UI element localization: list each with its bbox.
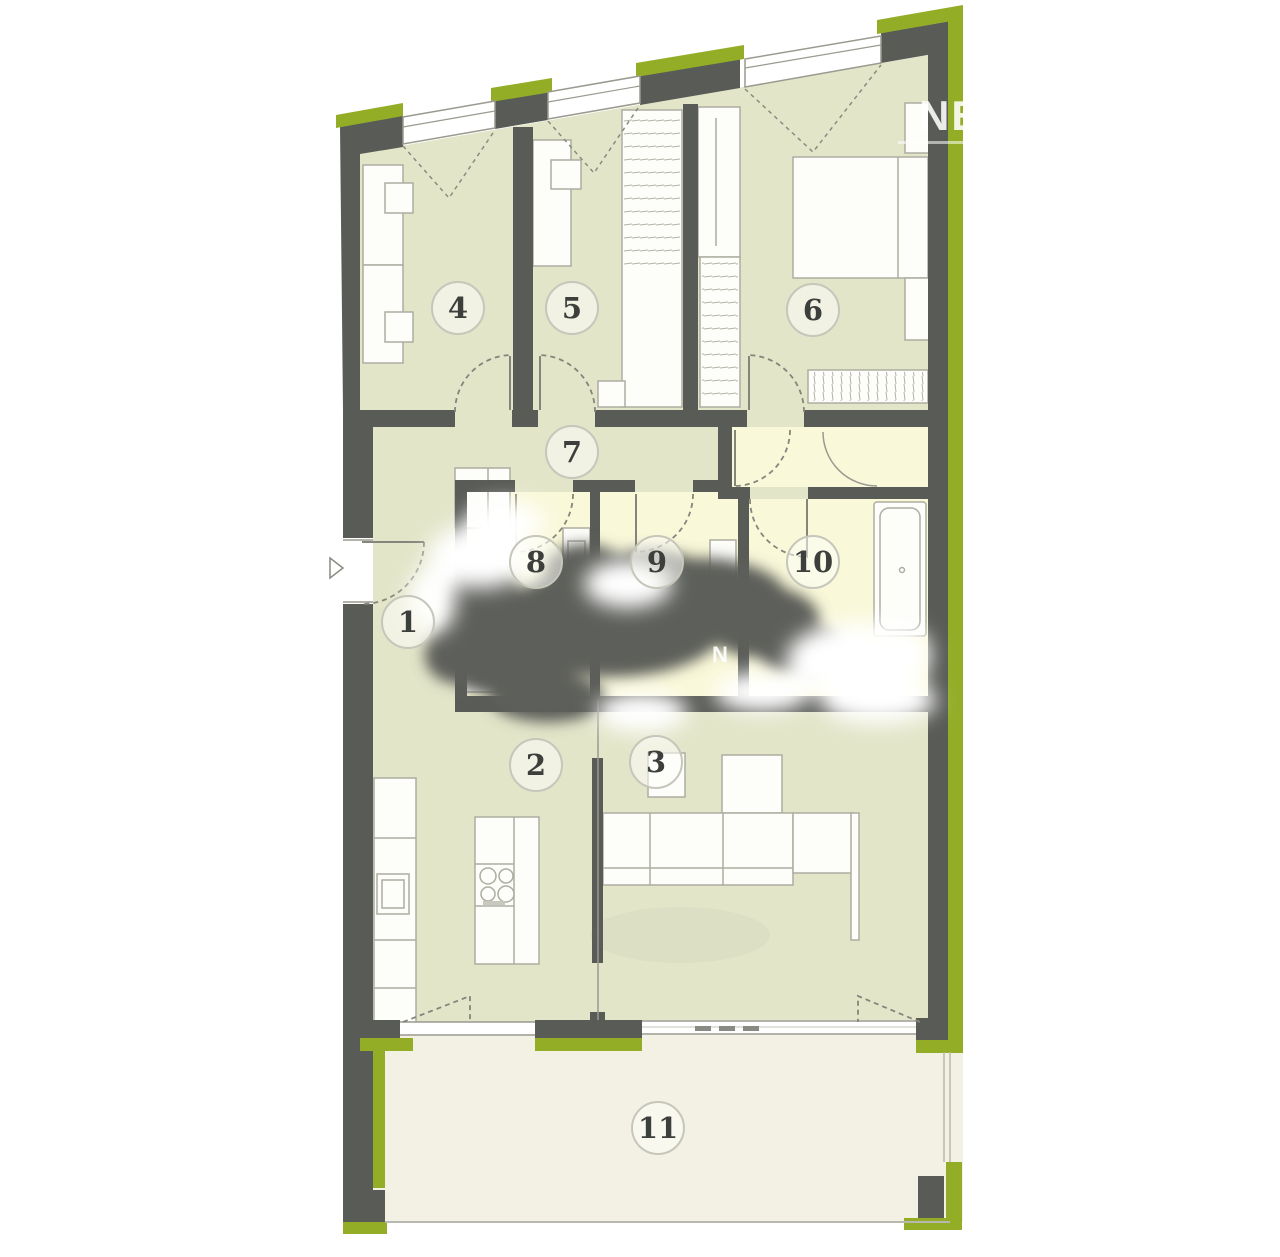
floor-plan-drawing	[0, 0, 1280, 1257]
kitchen-island	[475, 817, 539, 964]
faint-smudge-living	[590, 907, 770, 963]
wall-partition-5-6	[683, 104, 698, 410]
watermark-mini-mark: N	[712, 642, 728, 668]
wall-right	[928, 49, 948, 1038]
wall-left-lower	[343, 604, 373, 1022]
watermark-underline	[898, 141, 970, 144]
room-label-5: 5	[545, 281, 599, 335]
room-label-10: 10	[786, 535, 840, 589]
room-label-9: 9	[630, 535, 684, 589]
room-label-1: 1	[381, 595, 435, 649]
room6-wardrobe	[698, 107, 740, 407]
floor-plan-page: 1234567891011 NE N	[0, 0, 1280, 1257]
room-label-6: 6	[786, 283, 840, 337]
terrace-glazing	[400, 1020, 916, 1035]
green-strip-right	[948, 19, 963, 1052]
watermark-text: NE	[919, 92, 981, 140]
room6-radiator	[808, 370, 928, 403]
entry-opening	[343, 538, 373, 604]
room-label-4: 4	[431, 281, 485, 335]
room-label-7: 7	[545, 425, 599, 479]
kitchen-counter	[374, 778, 416, 1028]
bathtub-icon	[874, 502, 926, 636]
entrance-arrow-icon	[330, 558, 343, 578]
room-label-8: 8	[509, 535, 563, 589]
room-label-3: 3	[629, 735, 683, 789]
room-label-2: 2	[509, 738, 563, 792]
green-strip-terrace-left	[373, 1040, 385, 1188]
wall-partition-4-5	[513, 127, 533, 410]
wall-left-upper	[343, 410, 373, 538]
room-label-11: 11	[631, 1101, 685, 1155]
